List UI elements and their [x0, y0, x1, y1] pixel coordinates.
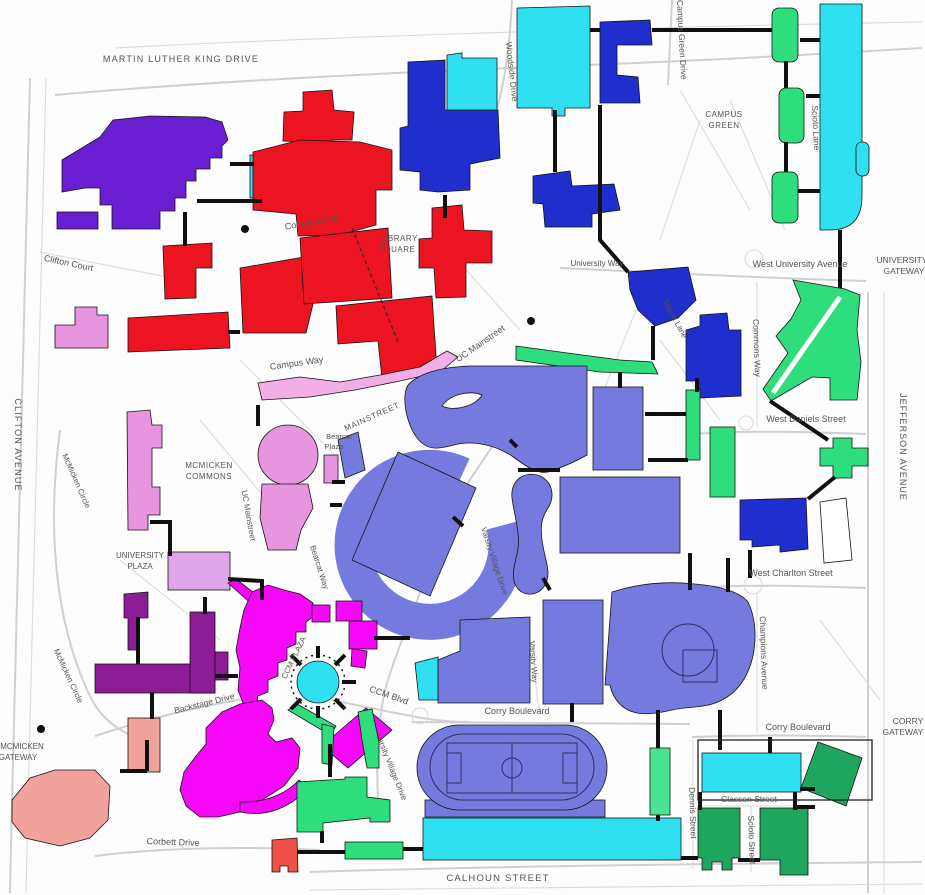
building-plum — [168, 552, 230, 590]
street-label: PLAZA — [127, 562, 153, 571]
street-label: Corbett Drive — [146, 836, 199, 848]
building-cyan — [415, 657, 438, 700]
building-plum — [55, 307, 108, 348]
building-magenta — [351, 649, 367, 668]
building-sea-green — [801, 742, 862, 806]
building-cyan — [423, 818, 681, 860]
street-label: Dennis Street — [687, 787, 699, 839]
transit-marker — [527, 317, 535, 325]
street-label: University Way — [570, 259, 623, 268]
building-green — [772, 8, 798, 62]
building-cyan — [517, 6, 590, 116]
building-red — [419, 205, 492, 298]
campus-map-canvas: MARTIN LUTHER KING DRIVEClifton CourtCLI… — [0, 0, 925, 895]
building-green — [772, 172, 798, 223]
building-red — [163, 243, 212, 299]
street-label: CLIFTON AVENUE — [13, 398, 23, 492]
building-periwinkle — [605, 583, 755, 714]
building-blue — [600, 20, 652, 103]
building-periwinkle — [512, 474, 552, 594]
building-sea-green — [698, 808, 740, 870]
street-label: GATEWAY — [883, 727, 924, 737]
building-green — [686, 390, 700, 460]
street-label: Campus Way — [269, 354, 324, 371]
street-label: Scioto Lane — [810, 105, 822, 151]
building-green — [345, 842, 403, 859]
building-salmon — [128, 718, 160, 772]
building-red — [300, 228, 392, 304]
street-label: MCMICKEN — [0, 742, 44, 751]
building-cyan — [447, 53, 497, 110]
street-label: COMMONS — [186, 472, 232, 481]
building-cyan — [856, 142, 869, 176]
building-salmon — [12, 770, 110, 846]
building-magenta — [349, 621, 377, 649]
building-periwinkle — [560, 477, 680, 553]
building-green — [650, 748, 670, 815]
street-label: MCMICKEN — [185, 461, 233, 470]
building-cyan — [820, 4, 862, 230]
street-label: West Daniels Street — [766, 414, 846, 424]
building-purple — [57, 212, 98, 229]
transit-marker — [241, 225, 249, 233]
street-label: JEFFERSON AVENUE — [898, 393, 908, 501]
building-sea-green — [760, 808, 808, 875]
street-label: MAINSTREET — [343, 400, 401, 432]
street-label: GATEWAY — [884, 266, 925, 276]
building-periwinkle — [593, 387, 643, 470]
building-outline — [820, 498, 852, 563]
building-red — [128, 312, 230, 352]
building-green — [297, 777, 390, 832]
building-cyan — [702, 753, 801, 792]
street-label: Corry Boulevard — [765, 722, 830, 732]
street-label: CALHOUN STREET — [446, 873, 549, 884]
campus-map: MARTIN LUTHER KING DRIVEClifton CourtCLI… — [0, 0, 925, 895]
street-label: SQUARE — [379, 245, 416, 254]
street-label: GATEWAY — [0, 753, 38, 762]
street-label: LIBRARY — [380, 234, 418, 243]
street-label: CCM Blvd — [368, 684, 410, 707]
building-blue — [628, 267, 696, 326]
building-red-orange — [272, 838, 298, 872]
street-label: Corry Boulevard — [484, 706, 549, 716]
building-plum — [258, 425, 318, 485]
building-plum — [324, 455, 338, 483]
street-label: West University Avenue — [753, 259, 848, 269]
buildings — [12, 4, 869, 875]
street-label: Bearcat — [326, 432, 353, 441]
street-label: Champions Avenue — [758, 616, 771, 690]
building-magenta — [336, 601, 362, 621]
transit-marker — [37, 725, 45, 733]
street-label: UNIVERSITY — [116, 551, 165, 560]
street-label: Campus Green Drive — [675, 0, 689, 80]
street-label: Plaza — [325, 442, 345, 451]
street-label: GREEN — [709, 121, 740, 130]
building-magenta — [312, 605, 330, 622]
building-blue — [740, 498, 808, 552]
street-label: MARTIN LUTHER KING DRIVE — [103, 54, 259, 64]
street-label: UNIVERSITY — [876, 255, 925, 265]
street-label: McMicken Circle — [60, 452, 92, 510]
street-label: UC Mainstreet — [240, 490, 258, 543]
building-green — [820, 438, 868, 478]
building-green — [779, 88, 804, 143]
street-label: CORRY — [893, 716, 924, 726]
street-label: West Charlton Street — [749, 568, 833, 578]
street-label: Bearcat Way — [308, 544, 331, 590]
building-dark-purple — [190, 612, 215, 693]
street-label: Scioto Street — [746, 815, 758, 865]
building-plum — [260, 484, 313, 550]
building-plum — [127, 410, 162, 530]
building-green — [710, 427, 735, 497]
building-blue — [533, 171, 620, 227]
street-label: CAMPUS — [705, 110, 742, 119]
street-label: McMicken Circle — [52, 647, 85, 704]
street-label: Classen Street — [721, 794, 777, 804]
street-label: Clifton Court — [43, 253, 94, 273]
building-periwinkle — [543, 600, 603, 704]
street-label: UC Mainstreet — [454, 323, 507, 364]
street-label: Commons Way — [751, 319, 763, 378]
plaza-sunburst — [297, 661, 339, 703]
